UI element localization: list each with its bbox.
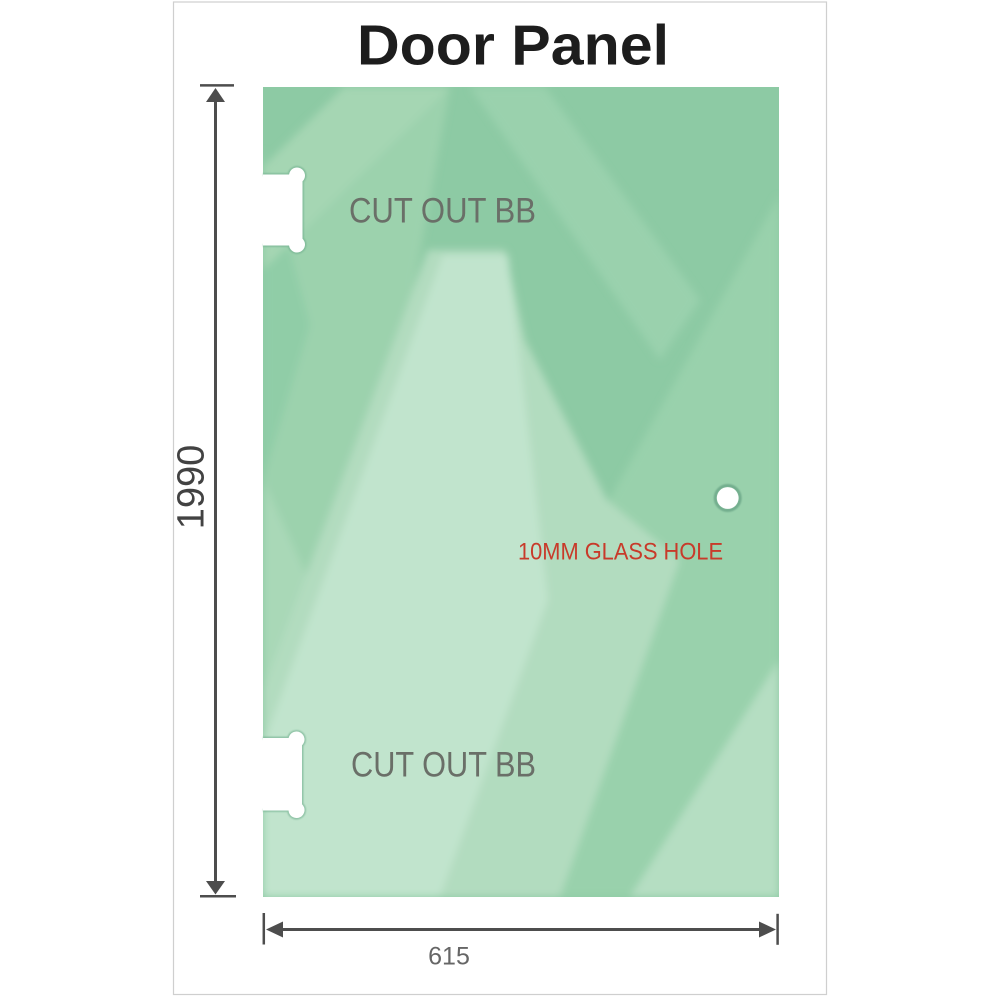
svg-text:615: 615 [428, 943, 470, 971]
svg-text:Door Panel: Door Panel [357, 14, 669, 78]
svg-text:10MM GLASS HOLE: 10MM GLASS HOLE [518, 539, 723, 566]
svg-text:CUT OUT BB: CUT OUT BB [349, 192, 536, 231]
svg-text:CUT OUT BB: CUT OUT BB [351, 746, 536, 785]
svg-text:1990: 1990 [171, 445, 213, 530]
